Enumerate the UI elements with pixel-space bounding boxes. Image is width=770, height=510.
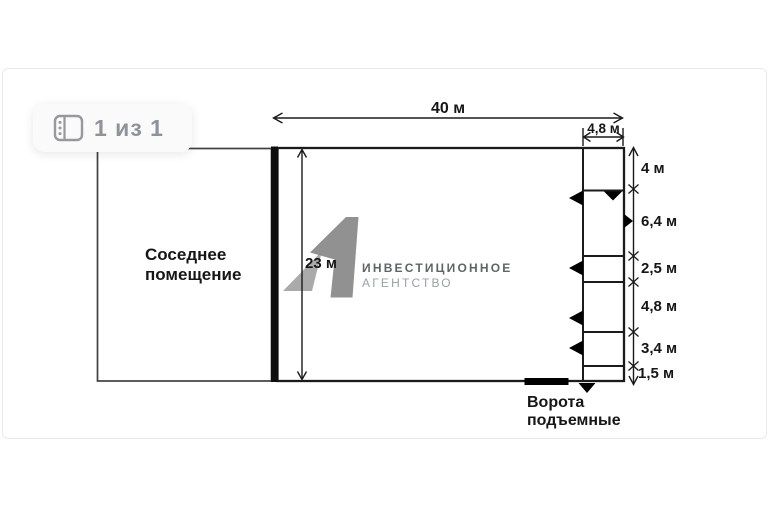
dimension-label-segment: 6,4 м — [641, 214, 691, 230]
gate-label: Ворота подъемные — [527, 394, 621, 429]
dimension-label-segment: 4,8 м — [641, 299, 691, 315]
dimension-label-top-width: 40 м — [410, 100, 486, 119]
photo-counter-text: 1 из 1 — [94, 115, 164, 142]
dimension-label-left-height: 23 м — [305, 255, 337, 273]
dimension-label-segment: 3,4 м — [641, 341, 691, 357]
watermark-agency-name: ИНВЕСТИЦИОННОЕ — [362, 261, 512, 275]
dimension-label-segment: 1,5 м — [638, 366, 688, 382]
dimension-label-segment: 4 м — [641, 161, 691, 177]
dimension-label-annex-width: 4,8 м — [581, 121, 626, 137]
dimension-label-segment: 2,5 м — [641, 261, 691, 277]
photo-counter-badge[interactable]: 1 из 1 — [33, 104, 192, 152]
screenshot-root: ИНВЕСТИЦИОННОЕ АГЕНТСТВО — [0, 0, 770, 510]
watermark-agency-subtitle: АГЕНТСТВО — [362, 276, 453, 290]
neighbor-room-label: Соседнее помещение — [145, 245, 241, 285]
gallery-icon — [53, 114, 84, 142]
